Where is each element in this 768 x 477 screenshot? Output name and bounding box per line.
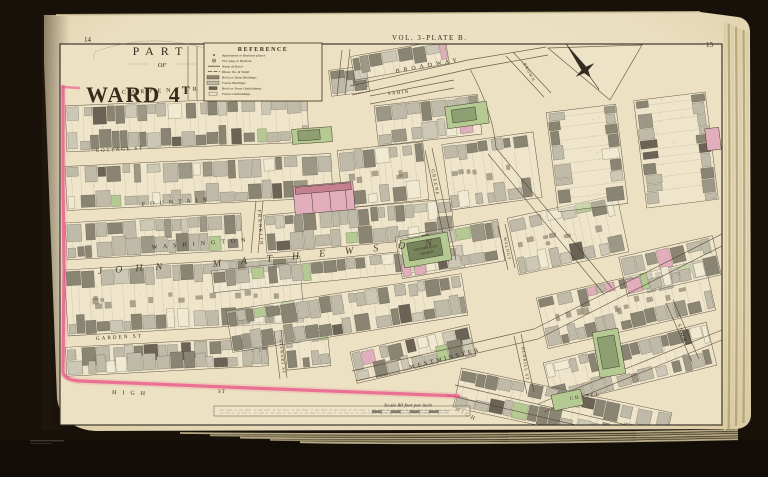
atlas-svg: CARPENTER COTTAGE ST FOUNTAIN WASHINGTON… <box>0 0 768 477</box>
legend-entry: Name of Street <box>221 65 244 69</box>
legend-entry: Frame Outbuildings <box>221 92 251 96</box>
church-lot-green-1 <box>292 127 333 145</box>
collection-mark <box>30 440 64 441</box>
legend-dot-icon <box>213 54 215 56</box>
city-block <box>634 92 719 208</box>
street-label-high-st: ST <box>218 390 226 395</box>
page-number-right: 15 <box>706 41 714 49</box>
legend-swatch-brick <box>207 76 219 79</box>
title-part: PART <box>133 44 190 58</box>
collection-mark-2 <box>30 443 52 444</box>
theatre-block-pink <box>293 181 355 214</box>
legend-swatch-brick-outbuilding <box>209 87 217 90</box>
legend-entry: Frame Buildings <box>221 81 246 85</box>
title-of: OF <box>158 62 168 69</box>
title-ward: WARD 4T <box>86 82 192 107</box>
legend-title: REFERENCE <box>238 47 289 53</box>
note-box <box>214 406 470 416</box>
legend-entry: House No. & Width <box>221 70 250 74</box>
pink-lot-2 <box>705 127 722 151</box>
atlas-book-scan: CARPENTER COTTAGE ST FOUNTAIN WASHINGTON… <box>0 0 768 477</box>
city-block <box>442 132 542 210</box>
legend-swatch-frame <box>207 81 219 84</box>
legend-entry: Fire plug or Hydrant <box>221 59 253 63</box>
legend-entry: Apartments or Business places <box>221 54 266 58</box>
volume-plate-label: VOL. 3-PLATE B. <box>392 34 467 42</box>
legend-entry: Brick or Stone Outbuildings <box>222 87 262 91</box>
legend-swatch-frame-outbuilding <box>209 92 217 95</box>
legend-entry: Brick or Stone Buildings <box>222 76 257 80</box>
book-cover-bottom <box>0 440 768 477</box>
city-block <box>546 104 628 212</box>
reference-legend: REFERENCE Apartments or Business places … <box>204 43 322 101</box>
page-number-left: 14 <box>84 36 92 44</box>
